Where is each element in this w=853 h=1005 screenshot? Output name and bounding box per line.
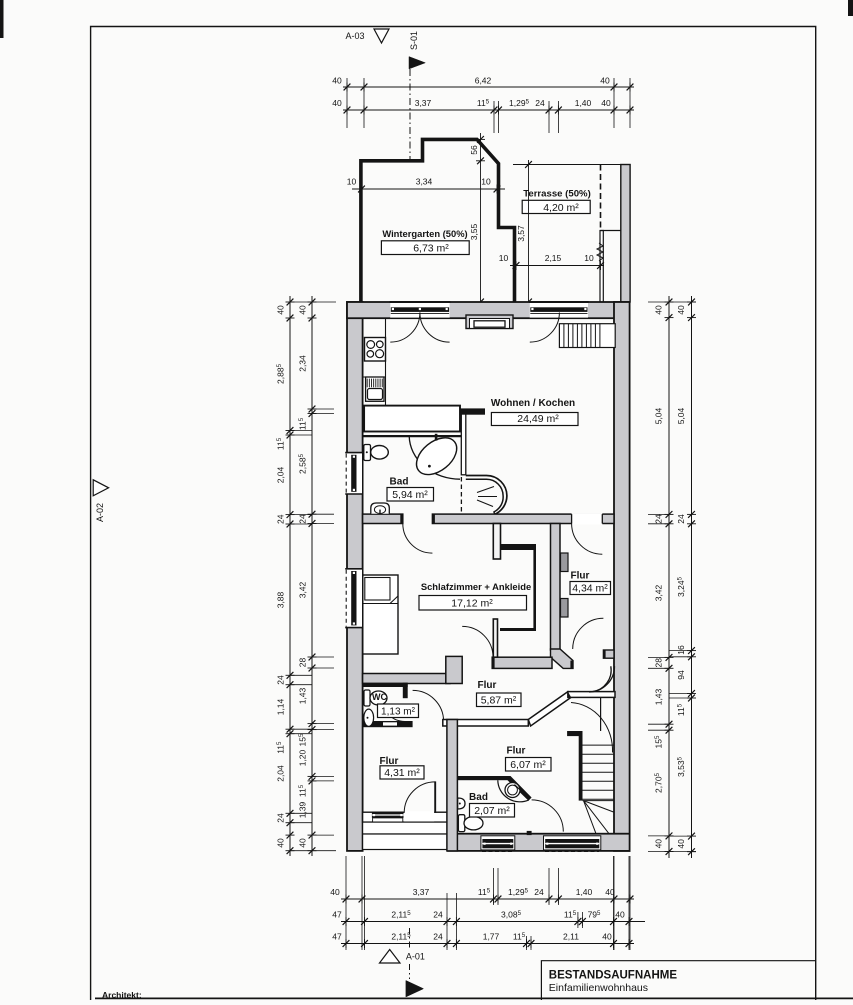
svg-text:Bad: Bad bbox=[390, 477, 409, 488]
svg-text:24: 24 bbox=[433, 932, 443, 942]
svg-text:Terrasse (50%): Terrasse (50%) bbox=[523, 189, 591, 200]
svg-text:40: 40 bbox=[332, 76, 342, 86]
svg-text:40: 40 bbox=[276, 838, 286, 848]
svg-text:1,14: 1,14 bbox=[276, 698, 286, 715]
svg-text:6,73 m²: 6,73 m² bbox=[413, 243, 449, 255]
svg-text:40: 40 bbox=[615, 910, 625, 920]
svg-text:24: 24 bbox=[534, 887, 544, 897]
svg-text:1,39: 1,39 bbox=[298, 801, 308, 818]
svg-text:47: 47 bbox=[332, 932, 342, 942]
svg-text:40: 40 bbox=[330, 887, 340, 897]
svg-text:56: 56 bbox=[469, 145, 479, 155]
svg-text:10: 10 bbox=[584, 253, 594, 263]
svg-text:40: 40 bbox=[276, 305, 286, 315]
svg-text:2,04: 2,04 bbox=[276, 466, 286, 483]
svg-text:WC: WC bbox=[372, 692, 387, 702]
svg-text:Architekt:: Architekt: bbox=[102, 990, 142, 1000]
svg-text:40: 40 bbox=[676, 305, 686, 315]
svg-text:40: 40 bbox=[601, 98, 611, 108]
svg-text:47: 47 bbox=[332, 910, 342, 920]
svg-text:A-01: A-01 bbox=[406, 952, 425, 962]
svg-text:17,12 m²: 17,12 m² bbox=[451, 598, 493, 610]
svg-text:2,07 m²: 2,07 m² bbox=[474, 805, 510, 817]
svg-text:24: 24 bbox=[298, 514, 308, 524]
svg-text:1,43: 1,43 bbox=[298, 687, 308, 704]
svg-text:5,04: 5,04 bbox=[676, 407, 686, 424]
svg-text:40: 40 bbox=[654, 305, 664, 315]
svg-text:24: 24 bbox=[654, 514, 664, 524]
svg-text:10: 10 bbox=[347, 177, 357, 187]
svg-text:S-01: S-01 bbox=[409, 31, 419, 50]
svg-text:28: 28 bbox=[298, 658, 308, 668]
svg-text:Bad: Bad bbox=[469, 792, 488, 803]
svg-text:5,94 m²: 5,94 m² bbox=[392, 489, 428, 501]
svg-text:40: 40 bbox=[298, 305, 308, 315]
svg-text:24: 24 bbox=[535, 98, 545, 108]
svg-text:3,57: 3,57 bbox=[516, 225, 526, 242]
svg-text:3,42: 3,42 bbox=[654, 584, 664, 601]
svg-text:1,43: 1,43 bbox=[654, 688, 664, 705]
svg-text:28: 28 bbox=[654, 658, 664, 668]
svg-text:6,42: 6,42 bbox=[475, 76, 492, 86]
svg-text:Flur: Flur bbox=[507, 746, 526, 757]
svg-text:3,34: 3,34 bbox=[416, 177, 433, 187]
svg-text:Flur: Flur bbox=[571, 571, 590, 582]
svg-text:94: 94 bbox=[676, 670, 686, 680]
svg-text:24: 24 bbox=[433, 910, 443, 920]
svg-text:40: 40 bbox=[600, 76, 610, 86]
svg-text:3,42: 3,42 bbox=[298, 581, 308, 598]
svg-text:5,04: 5,04 bbox=[654, 407, 664, 424]
svg-text:40: 40 bbox=[676, 839, 686, 849]
svg-text:40: 40 bbox=[298, 838, 308, 848]
svg-text:Schlafzimmer + Ankleide: Schlafzimmer + Ankleide bbox=[421, 581, 531, 592]
svg-text:40: 40 bbox=[332, 98, 342, 108]
svg-text:A-03: A-03 bbox=[345, 31, 364, 41]
svg-text:16: 16 bbox=[676, 645, 686, 655]
svg-text:24,49 m²: 24,49 m² bbox=[517, 413, 559, 425]
svg-text:4,20 m²: 4,20 m² bbox=[543, 202, 579, 214]
svg-text:2,04: 2,04 bbox=[276, 765, 286, 782]
svg-text:Wohnen / Kochen: Wohnen / Kochen bbox=[491, 398, 575, 409]
svg-text:Einfamilienwohnhaus: Einfamilienwohnhaus bbox=[549, 982, 648, 994]
svg-text:2,15: 2,15 bbox=[545, 253, 562, 263]
svg-text:24: 24 bbox=[676, 514, 686, 524]
svg-text:24: 24 bbox=[276, 813, 286, 823]
svg-text:3,88: 3,88 bbox=[276, 591, 286, 608]
svg-text:24: 24 bbox=[276, 675, 286, 685]
svg-text:Flur: Flur bbox=[478, 680, 497, 691]
svg-text:4,31 m²: 4,31 m² bbox=[384, 767, 420, 779]
svg-text:6,07 m²: 6,07 m² bbox=[510, 759, 546, 771]
svg-text:4,34 m²: 4,34 m² bbox=[572, 583, 608, 595]
svg-text:24: 24 bbox=[276, 514, 286, 524]
svg-text:10: 10 bbox=[481, 177, 491, 187]
svg-text:2,11: 2,11 bbox=[563, 932, 579, 942]
svg-text:40: 40 bbox=[602, 932, 612, 942]
svg-text:2,34: 2,34 bbox=[298, 355, 308, 372]
svg-text:3,37: 3,37 bbox=[413, 887, 430, 897]
svg-text:10: 10 bbox=[499, 253, 509, 263]
svg-text:BESTANDSAUFNAHME: BESTANDSAUFNAHME bbox=[549, 970, 678, 982]
svg-text:3,55: 3,55 bbox=[469, 223, 479, 240]
svg-text:3,37: 3,37 bbox=[415, 98, 432, 108]
svg-text:1,77: 1,77 bbox=[483, 932, 500, 942]
svg-text:Wintergarten (50%): Wintergarten (50%) bbox=[382, 228, 467, 239]
svg-text:40: 40 bbox=[654, 839, 664, 849]
svg-text:A-02: A-02 bbox=[95, 503, 105, 522]
svg-text:1,40: 1,40 bbox=[575, 98, 592, 108]
svg-text:5,87 m²: 5,87 m² bbox=[481, 695, 517, 707]
svg-text:1,20: 1,20 bbox=[298, 749, 308, 766]
svg-text:1,40: 1,40 bbox=[576, 887, 593, 897]
svg-text:1,13 m²: 1,13 m² bbox=[381, 707, 416, 718]
